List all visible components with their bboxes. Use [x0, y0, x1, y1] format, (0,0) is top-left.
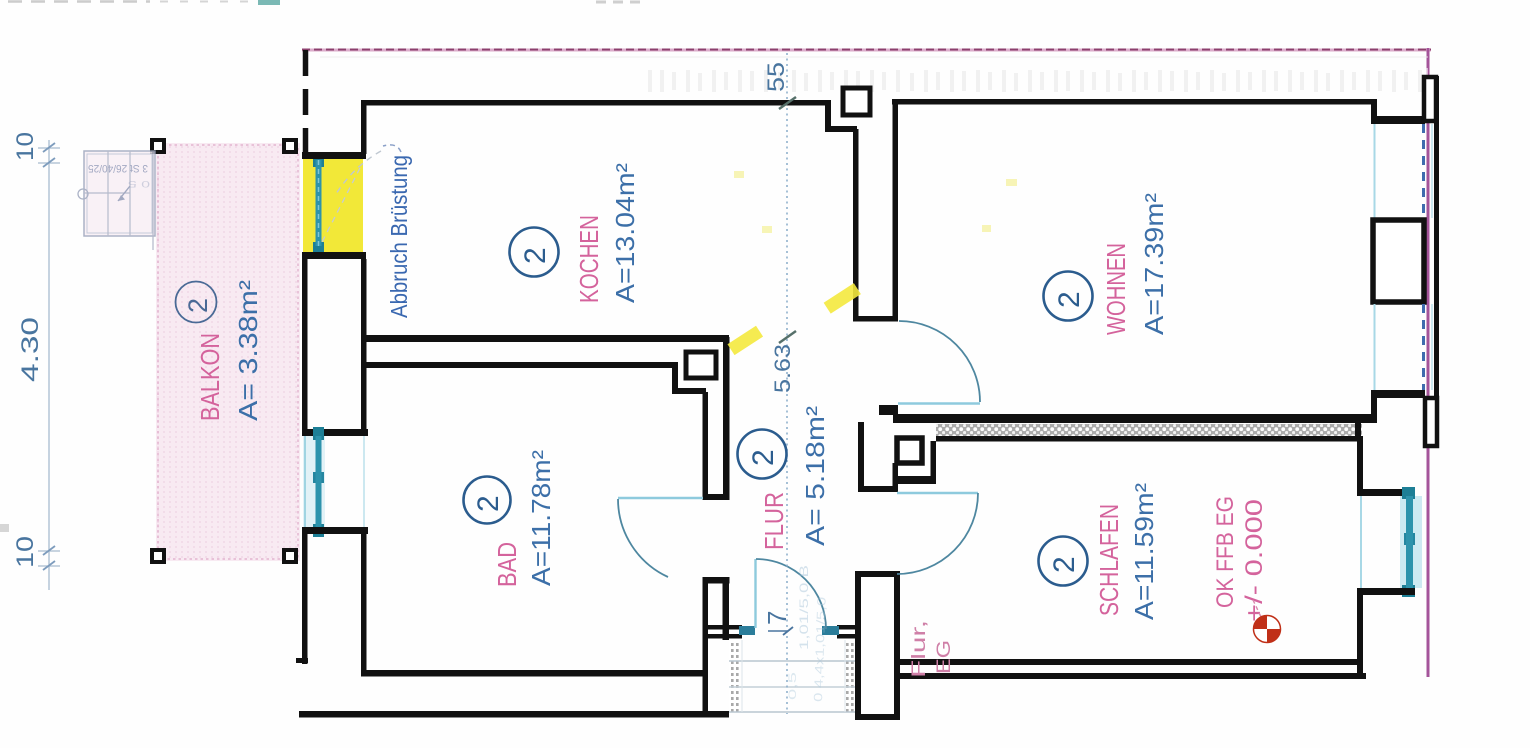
svg-text:OK FFB EG: OK FFB EG	[1212, 496, 1239, 608]
svg-text:SCHLAFEN: SCHLAFEN	[1094, 504, 1124, 616]
svg-text:Abbruch Brüstung: Abbruch Brüstung	[386, 155, 412, 318]
svg-text:2: 2	[519, 247, 552, 264]
svg-text:Flur,: Flur,	[909, 620, 930, 678]
svg-text:A= 3.38m²: A= 3.38m²	[233, 280, 263, 421]
svg-text:2: 2	[1053, 291, 1086, 308]
svg-text:2: 2	[747, 449, 780, 466]
svg-text:A=17.39m²: A=17.39m²	[1139, 193, 1169, 335]
svg-text:EG: EG	[934, 640, 955, 674]
svg-text:1,01/5,0 B: 1,01/5,0 B	[797, 565, 811, 650]
svg-text:2: 2	[472, 495, 505, 512]
svg-text:7: 7	[762, 611, 792, 625]
svg-text:A=13.04m²: A=13.04m²	[610, 163, 640, 303]
svg-text:2: 2	[183, 298, 213, 313]
svg-text:10: 10	[12, 132, 39, 161]
svg-text:55: 55	[763, 62, 790, 92]
svg-text:A= 5.18m²: A= 5.18m²	[800, 406, 830, 546]
svg-text:3 St 26/40/25: 3 St 26/40/25	[88, 162, 148, 174]
svg-text:FLUR: FLUR	[759, 492, 789, 550]
svg-text:2: 2	[1048, 556, 1081, 573]
svg-text:10: 10	[12, 536, 39, 568]
svg-text:4.30: 4.30	[17, 317, 44, 382]
svg-text:5.63: 5.63	[770, 344, 795, 393]
svg-text:A=11.59m²: A=11.59m²	[1129, 483, 1159, 620]
svg-text:0,5: 0,5	[787, 672, 799, 700]
svg-text:A=11.78m²: A=11.78m²	[526, 450, 556, 586]
svg-text:BALKON: BALKON	[195, 333, 225, 421]
svg-text:0 5: 0 5	[128, 179, 150, 189]
svg-text:BAD: BAD	[492, 542, 522, 587]
svg-text:WOHNEN: WOHNEN	[1101, 243, 1131, 335]
svg-text:KOCHEN: KOCHEN	[574, 215, 604, 303]
